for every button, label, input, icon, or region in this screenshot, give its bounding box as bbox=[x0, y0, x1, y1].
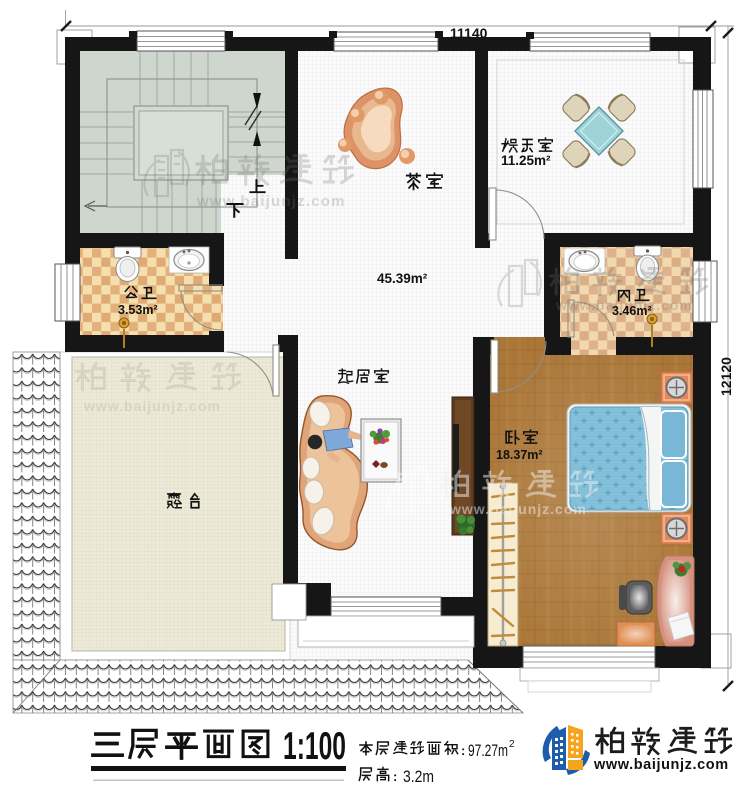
svg-text:3.46m²: 3.46m² bbox=[612, 304, 652, 318]
svg-text:3.53m²: 3.53m² bbox=[118, 303, 158, 317]
svg-text::: : bbox=[393, 769, 397, 784]
svg-text:11140: 11140 bbox=[450, 25, 488, 41]
svg-text::: : bbox=[461, 743, 465, 758]
svg-text:www.baijunjz.com: www.baijunjz.com bbox=[83, 398, 221, 414]
svg-text:97.27m: 97.27m bbox=[468, 741, 508, 760]
svg-text:www.baijunjz.com: www.baijunjz.com bbox=[449, 501, 587, 517]
svg-text:12120: 12120 bbox=[718, 357, 734, 396]
svg-text:1:100: 1:100 bbox=[283, 725, 346, 768]
svg-text:11.25m²: 11.25m² bbox=[501, 153, 551, 168]
svg-text:www.baijunjz.com: www.baijunjz.com bbox=[196, 193, 346, 210]
svg-text:www.baijunjz.com: www.baijunjz.com bbox=[593, 757, 729, 773]
svg-text:3.2m: 3.2m bbox=[403, 767, 434, 786]
svg-text:45.39m²: 45.39m² bbox=[377, 271, 428, 286]
svg-text:2: 2 bbox=[509, 739, 515, 750]
svg-text:18.37m²: 18.37m² bbox=[496, 448, 543, 462]
